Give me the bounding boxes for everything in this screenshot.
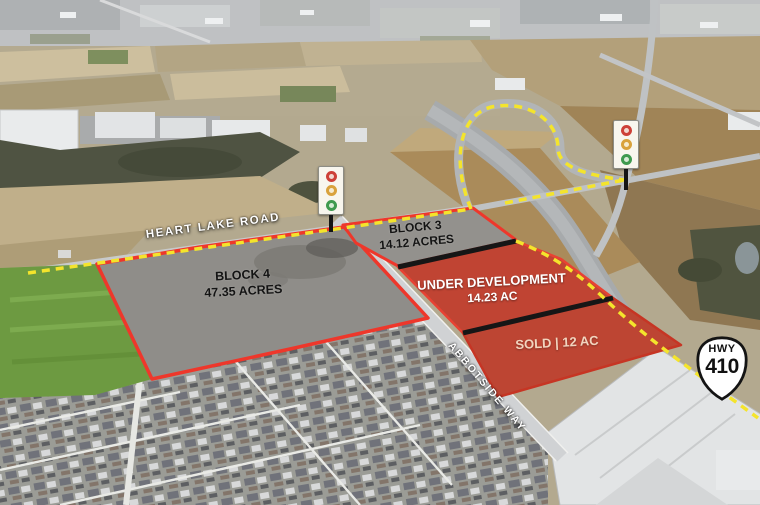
aerial-site-map: HEART LAKE ROAD ABBOTSIDE WAY BLOCK 4 47… — [0, 0, 760, 505]
traffic-signal-icon — [613, 120, 639, 190]
green-light-icon — [326, 200, 337, 211]
traffic-signal-face — [613, 120, 639, 169]
traffic-signal-face — [318, 166, 344, 215]
shield-number: 410 — [692, 356, 752, 377]
green-light-icon — [621, 154, 632, 165]
dirt-smudge — [306, 238, 358, 258]
amber-light-icon — [326, 185, 337, 196]
signal-pole — [624, 169, 628, 190]
shield-text: HWY 410 — [692, 344, 752, 377]
red-light-icon — [326, 171, 337, 182]
red-light-icon — [621, 125, 632, 136]
traffic-signal-icon — [318, 166, 344, 232]
amber-light-icon — [621, 139, 632, 150]
shield-prefix: HWY — [692, 344, 752, 355]
highway-410-shield: HWY 410 — [692, 335, 752, 402]
signal-pole — [329, 215, 333, 232]
